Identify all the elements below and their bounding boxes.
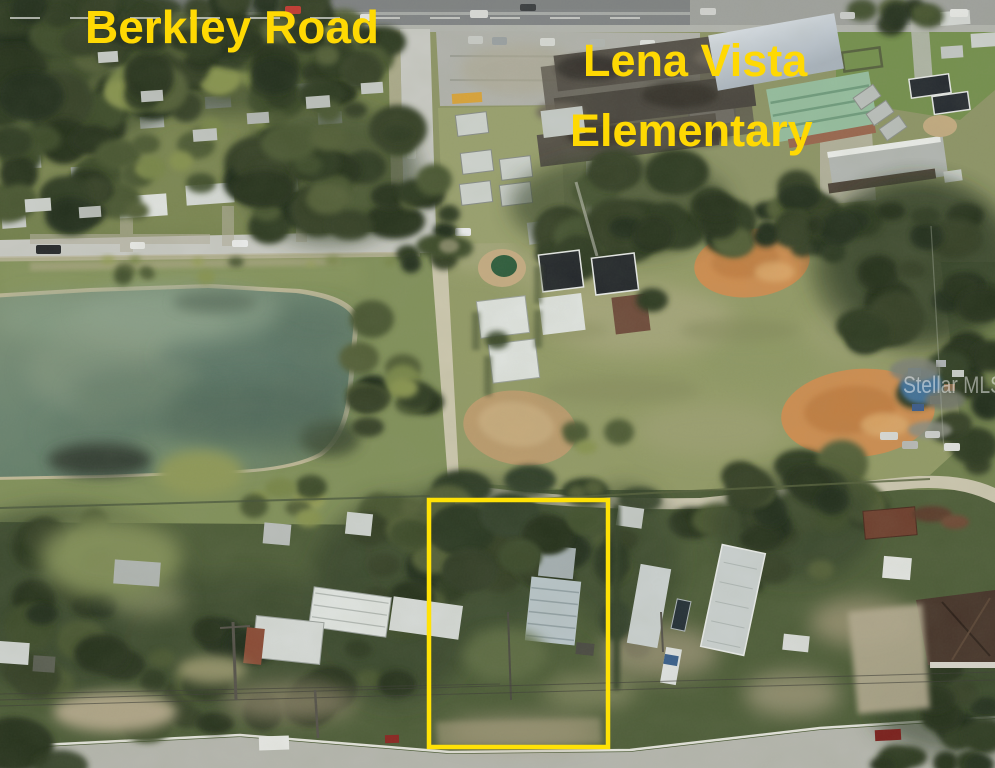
svg-text:Berkley Road: Berkley Road bbox=[85, 1, 379, 53]
svg-text:Lena Vista: Lena Vista bbox=[583, 35, 808, 86]
svg-text:Stellar MLS: Stellar MLS bbox=[903, 371, 995, 399]
svg-text:Elementary: Elementary bbox=[570, 105, 813, 156]
